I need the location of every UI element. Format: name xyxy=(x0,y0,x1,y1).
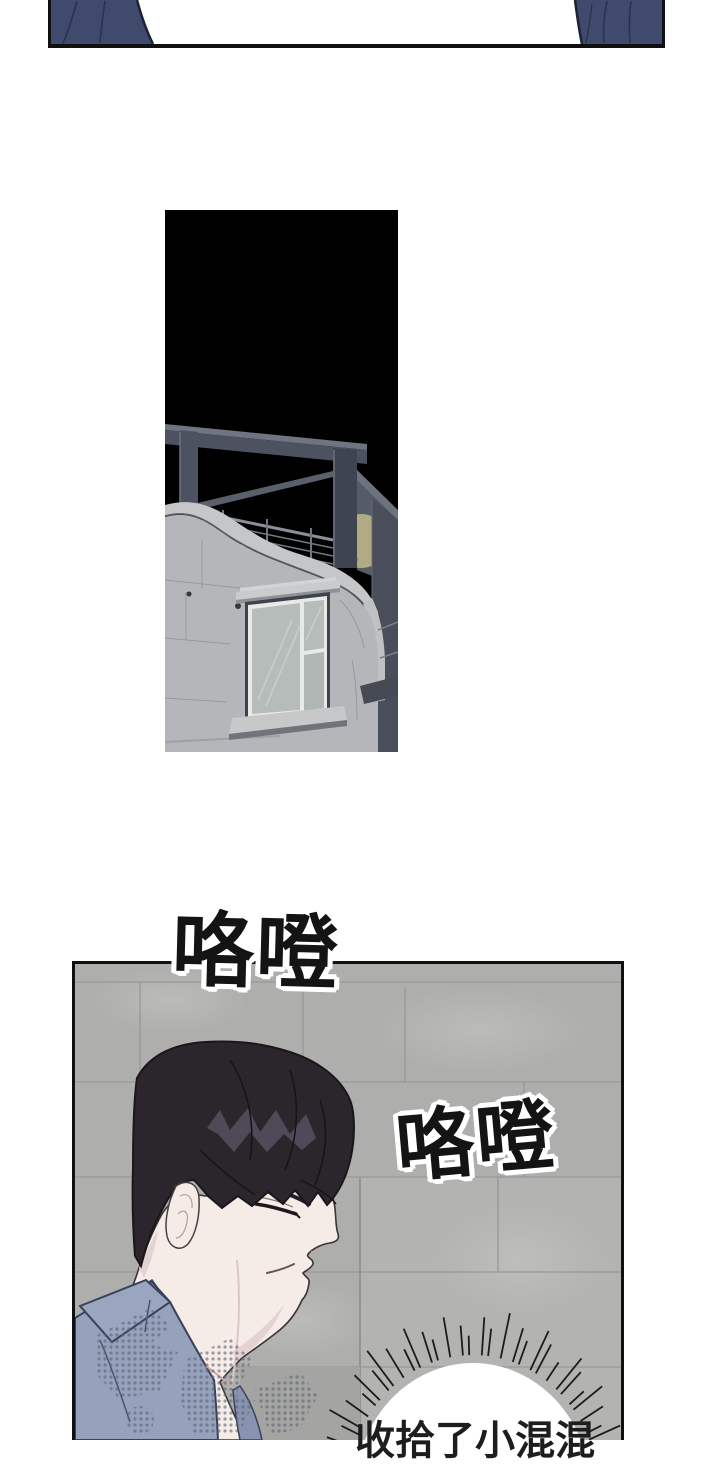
comic-page: { "page_type": "webtoon-comic-page", "sf… xyxy=(0,0,720,1440)
panel-alley-wall xyxy=(72,961,624,1440)
cloth-right-figure xyxy=(575,0,662,44)
alley-scene xyxy=(75,964,621,1440)
doorway-figures xyxy=(51,0,662,44)
panel-doorway xyxy=(48,0,665,48)
sfx-thud-2: 咯噔 xyxy=(393,1095,559,1187)
cloth-left-figure xyxy=(51,0,153,44)
panel-building-night xyxy=(165,210,398,752)
building-illustration xyxy=(165,210,398,752)
sfx-thud-1: 咯噔 xyxy=(171,910,341,996)
speech-bubble-text: 收拾了小混混 xyxy=(355,1418,595,1464)
window xyxy=(229,577,347,740)
